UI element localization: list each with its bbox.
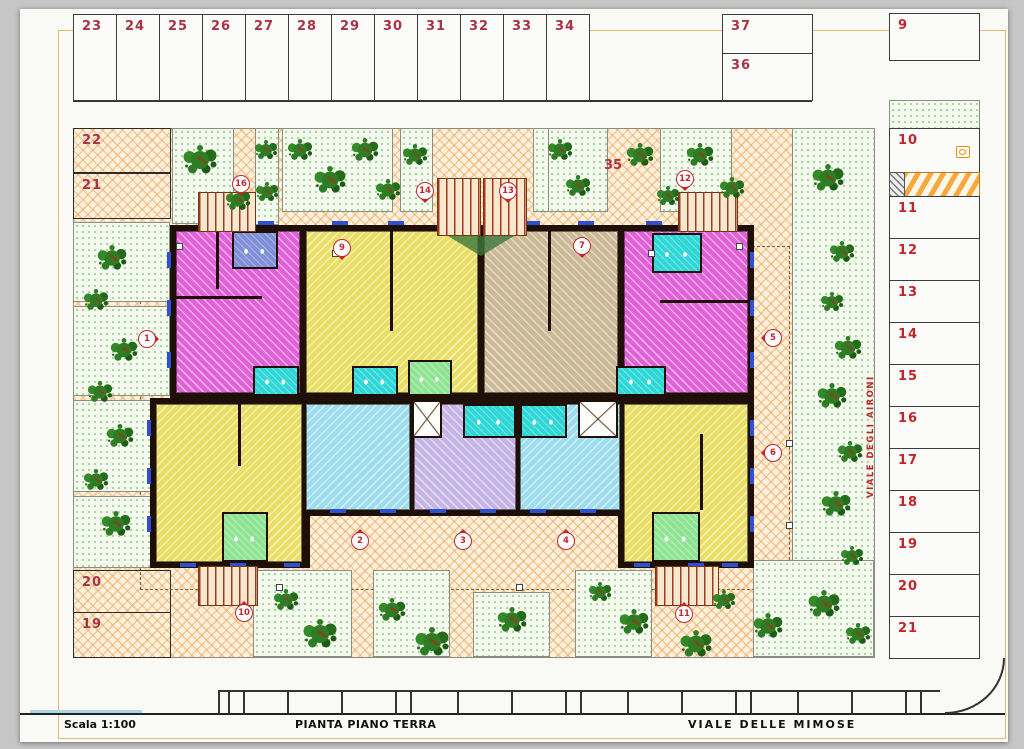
- marker-pointer: [338, 256, 346, 264]
- tree: [408, 148, 421, 161]
- parking-stall-32: 32: [460, 14, 504, 101]
- parking-stall-14: 14: [889, 322, 980, 365]
- tree: [725, 181, 738, 194]
- titleblock-line: [20, 713, 1005, 715]
- partition-wall: [216, 231, 219, 289]
- planter: [255, 128, 279, 225]
- external-staircase: [437, 178, 481, 236]
- tree: [626, 614, 642, 630]
- tree: [423, 633, 441, 651]
- tree: [104, 250, 120, 266]
- external-staircase: [198, 192, 256, 232]
- stall-divider: [218, 690, 220, 714]
- marker-pointer: [459, 525, 467, 533]
- bathroom: [352, 366, 398, 396]
- window-tick: [580, 509, 596, 513]
- window-tick: [284, 563, 300, 567]
- marker-pointer: [421, 199, 429, 207]
- stair-core: [412, 400, 442, 438]
- survey-point: [786, 522, 793, 529]
- bathroom: [232, 231, 278, 269]
- tree: [828, 496, 844, 512]
- planter: [253, 570, 352, 657]
- tree: [824, 388, 840, 404]
- marker-pointer: [240, 597, 248, 605]
- tree: [841, 341, 855, 355]
- tree: [385, 603, 399, 617]
- scanned-plan-page: { "sheet": { "scale_label": "Scala 1:100…: [0, 0, 1024, 749]
- apartment-s1: [306, 404, 410, 510]
- plan-title: PIANTA PIANO TERRA: [295, 718, 436, 731]
- tree: [633, 148, 647, 162]
- entry-marker-7: 7: [573, 237, 591, 255]
- window-tick: [750, 352, 754, 368]
- stair-core: [578, 400, 618, 438]
- window-tick: [330, 509, 346, 513]
- stall-divider: [681, 690, 683, 714]
- survey-point: [516, 584, 523, 591]
- bathroom: [253, 366, 299, 396]
- parking-stall-36: 36: [722, 53, 813, 101]
- stall-symbol-icon: [956, 146, 970, 158]
- tree: [89, 293, 102, 306]
- survey-point: [176, 243, 183, 250]
- parking-stall-21: 21: [73, 173, 171, 219]
- stall-divider: [565, 690, 567, 714]
- tree: [688, 636, 705, 653]
- entry-marker-9: 9: [333, 239, 351, 257]
- window-tick: [750, 468, 754, 484]
- stall-divider: [797, 690, 799, 714]
- window-tick: [380, 509, 396, 513]
- planter: [533, 128, 549, 212]
- survey-point: [276, 584, 283, 591]
- external-staircase: [198, 566, 258, 606]
- tree: [846, 550, 858, 562]
- tree: [261, 186, 273, 198]
- window-tick: [430, 509, 446, 513]
- window-tick: [147, 468, 151, 484]
- parking-stall-25: 25: [159, 14, 203, 101]
- stall-divider: [395, 690, 397, 714]
- parking-stall-9: 9: [889, 13, 980, 61]
- stall-divider: [341, 690, 343, 714]
- ramp-hatch: [889, 172, 905, 197]
- stall-divider: [243, 690, 245, 714]
- planter: [73, 222, 170, 302]
- stall-divider: [410, 690, 412, 714]
- window-tick: [167, 352, 171, 368]
- bathroom: [520, 404, 567, 438]
- parking-stall-33: 33: [503, 14, 547, 101]
- partition-wall: [548, 231, 551, 331]
- marker-pointer: [757, 449, 765, 457]
- parking-stall-29: 29: [331, 14, 375, 101]
- window-tick: [750, 420, 754, 436]
- parking-stall-24: 24: [116, 14, 160, 101]
- street-name-bottom: VIALE DELLE MIMOSE: [688, 718, 856, 731]
- tree: [662, 190, 674, 202]
- parking-stall-22: 22: [73, 128, 171, 173]
- parking-stall-26: 26: [202, 14, 246, 101]
- stall-divider: [750, 690, 752, 714]
- stall-divider: [735, 690, 737, 714]
- parking-stall-12: 12: [889, 238, 980, 281]
- parking-stall-37: 37: [722, 14, 813, 54]
- window-tick: [750, 252, 754, 268]
- bathroom: [652, 233, 702, 273]
- tree: [93, 385, 106, 398]
- tree: [381, 183, 394, 196]
- tree: [594, 586, 606, 598]
- lot-number-label: 35: [604, 158, 622, 173]
- parking-stall-19: 19: [73, 612, 171, 658]
- marker-pointer: [578, 254, 586, 262]
- window-tick: [180, 563, 196, 567]
- parking-stall-15: 15: [889, 364, 980, 407]
- marker-pointer: [155, 335, 163, 343]
- tree: [504, 612, 520, 628]
- bathroom: [408, 360, 452, 396]
- tree: [322, 172, 339, 189]
- tree: [835, 245, 848, 258]
- bathroom: [463, 404, 516, 438]
- parking-stall-21: 21: [889, 616, 980, 659]
- tree: [108, 516, 124, 532]
- entry-marker-2: 2: [351, 532, 369, 550]
- tree: [293, 143, 306, 156]
- tree: [117, 343, 131, 357]
- window-tick: [388, 221, 404, 225]
- tree: [820, 170, 837, 187]
- stall-divider: [287, 690, 289, 714]
- bathroom: [616, 366, 666, 396]
- tree: [571, 179, 584, 192]
- tree: [843, 445, 856, 458]
- partition-wall: [390, 231, 393, 331]
- tree: [816, 596, 833, 613]
- parking-stall-34: 34: [546, 14, 590, 101]
- partition-wall: [238, 404, 241, 466]
- parking-stall-20: 20: [889, 574, 980, 617]
- window-tick: [167, 252, 171, 268]
- window-tick: [480, 509, 496, 513]
- entry-marker-3: 3: [454, 532, 472, 550]
- window-tick: [634, 563, 650, 567]
- bathroom: [222, 512, 268, 562]
- tree: [89, 473, 102, 486]
- tree: [191, 151, 209, 169]
- tree: [311, 625, 329, 643]
- window-tick: [147, 420, 151, 436]
- entry-marker-11: 11: [675, 605, 693, 623]
- entry-marker-14: 14: [416, 182, 434, 200]
- tree: [358, 143, 372, 157]
- marker-pointer: [504, 199, 512, 207]
- stall-divider: [228, 690, 230, 714]
- window-tick: [147, 516, 151, 532]
- verge: [889, 100, 980, 129]
- partition-wall: [700, 434, 703, 510]
- tree: [718, 594, 730, 606]
- stall-divider: [511, 690, 513, 714]
- parking-stall-11: 11: [889, 196, 980, 239]
- marker-pointer: [356, 525, 364, 533]
- partition-wall: [660, 300, 748, 303]
- lawn: [753, 560, 874, 657]
- scale-label: Scala 1:100: [64, 718, 136, 731]
- site-plan-canvas: 35 VIALE DEGLI AIRONI Scala 1:100 PIANTA…: [0, 0, 1024, 749]
- stall-divider: [457, 690, 459, 714]
- stall-divider: [920, 690, 922, 714]
- parking-stall-17: 17: [889, 448, 980, 491]
- titleblock-accent: [30, 710, 142, 713]
- street-name-right: VIALE DEGLI AIRONI: [866, 338, 876, 498]
- tree: [260, 144, 272, 156]
- marker-pointer: [680, 598, 688, 606]
- marker-pointer: [757, 334, 765, 342]
- tree: [553, 143, 566, 156]
- external-staircase: [678, 192, 738, 232]
- window-tick: [750, 516, 754, 532]
- tree: [113, 429, 127, 443]
- entrance-canopy: [448, 236, 514, 256]
- window-tick: [722, 563, 738, 567]
- tree: [693, 148, 707, 162]
- planter: [282, 128, 393, 212]
- parking-stall-28: 28: [288, 14, 332, 101]
- tree: [279, 593, 292, 606]
- window-tick: [167, 300, 171, 316]
- parking-stall-30: 30: [374, 14, 418, 101]
- entry-marker-12: 12: [676, 170, 694, 188]
- entry-marker-10: 10: [235, 604, 253, 622]
- parking-stall-27: 27: [245, 14, 289, 101]
- tree: [826, 296, 838, 308]
- marker-pointer: [681, 187, 689, 195]
- parking-stall-18: 18: [889, 490, 980, 533]
- entry-marker-4: 4: [557, 532, 575, 550]
- marker-pointer: [562, 525, 570, 533]
- survey-point: [736, 243, 743, 250]
- entry-marker-1: 1: [138, 330, 156, 348]
- parking-stall-13: 13: [889, 280, 980, 323]
- parking-stall-23: 23: [73, 14, 117, 101]
- entry-marker-5: 5: [764, 329, 782, 347]
- window-tick: [750, 300, 754, 316]
- entry-marker-6: 6: [764, 444, 782, 462]
- planter: [575, 570, 652, 657]
- tree: [760, 618, 776, 634]
- road-line: [218, 690, 940, 692]
- window-tick: [258, 221, 274, 225]
- stall-divider: [627, 690, 629, 714]
- entry-marker-13: 13: [499, 182, 517, 200]
- window-tick: [646, 221, 662, 225]
- window-tick: [578, 221, 594, 225]
- planter: [548, 128, 608, 212]
- window-tick: [530, 509, 546, 513]
- partition-wall: [176, 296, 262, 299]
- survey-point: [648, 250, 655, 257]
- tree: [851, 627, 864, 640]
- stall-divider: [905, 690, 907, 714]
- survey-point: [786, 440, 793, 447]
- stall-divider: [580, 690, 582, 714]
- marker-pointer: [237, 192, 245, 200]
- window-tick: [332, 221, 348, 225]
- stall-divider: [851, 690, 853, 714]
- bathroom: [652, 512, 700, 562]
- parking-stall-16: 16: [889, 406, 980, 449]
- entry-marker-16: 16: [232, 175, 250, 193]
- parking-stall-19: 19: [889, 532, 980, 575]
- parking-stall-31: 31: [417, 14, 461, 101]
